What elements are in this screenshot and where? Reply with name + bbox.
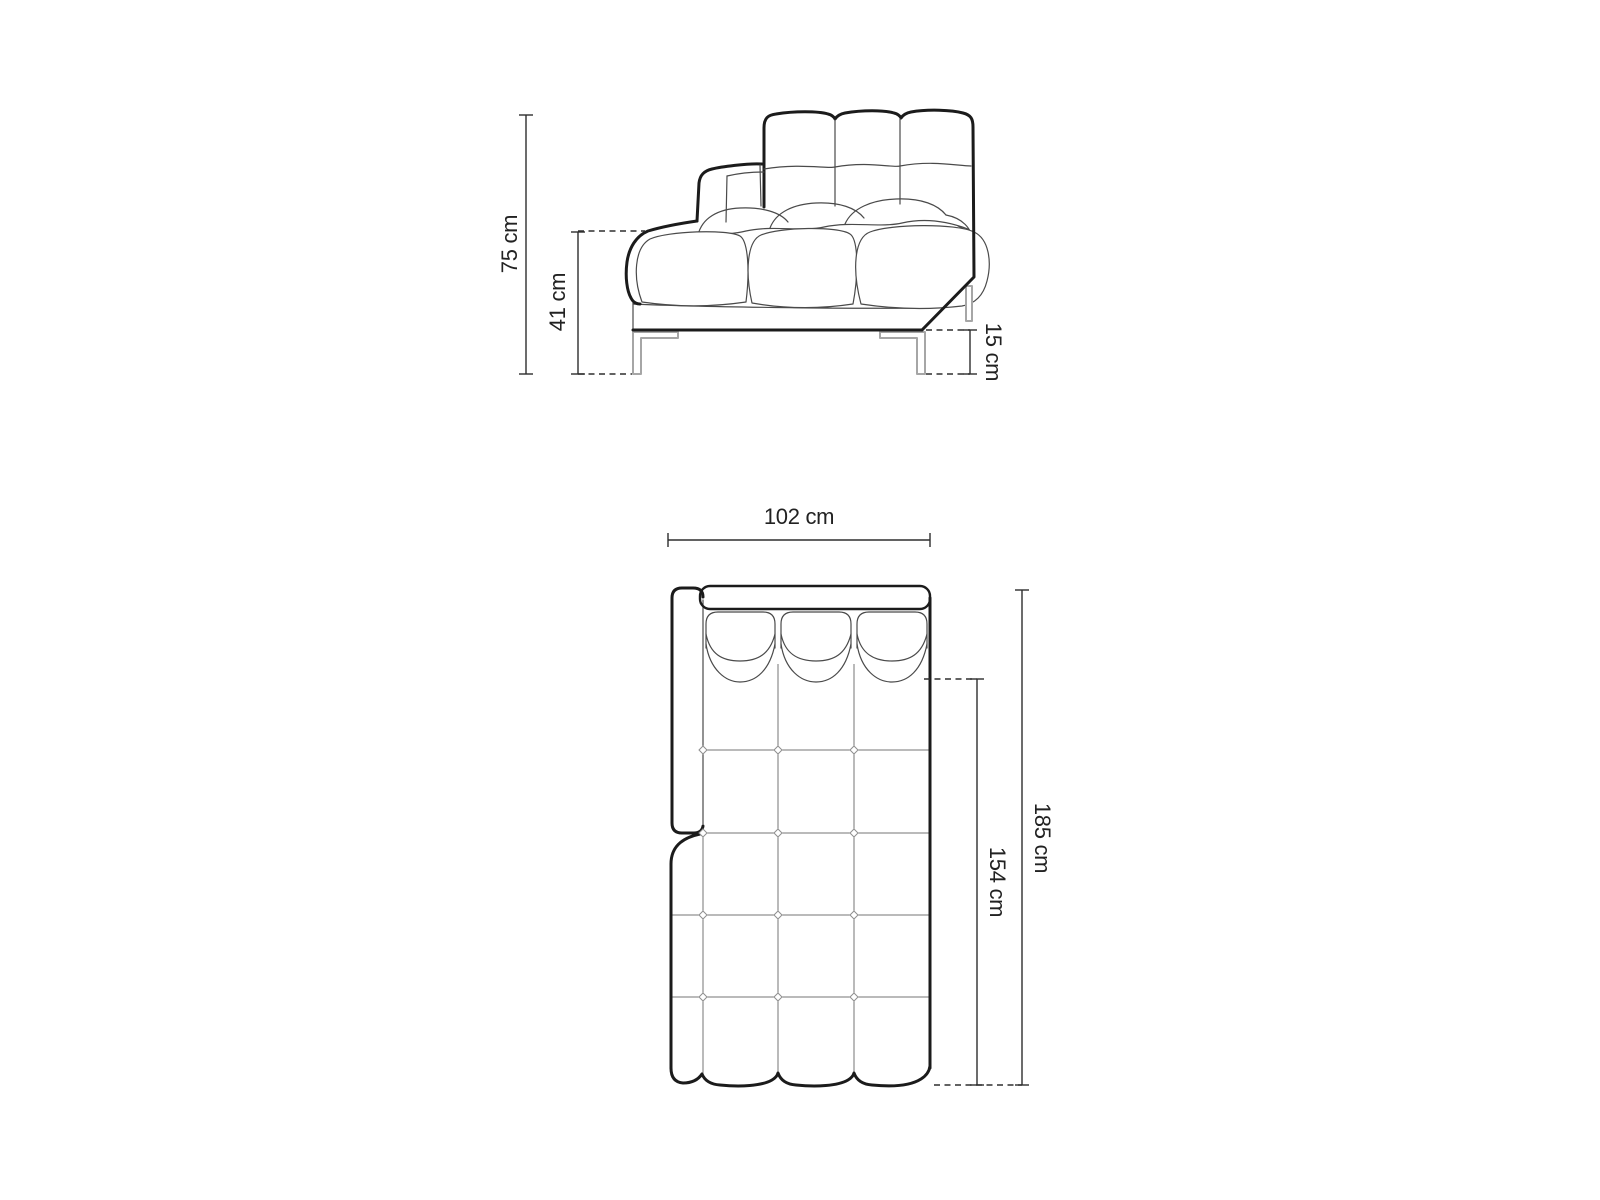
front-leg: [633, 332, 678, 374]
rear-leg: [880, 332, 925, 374]
dim-total-depth: [934, 590, 1029, 1085]
plan-armrest: [672, 588, 703, 833]
dim-leg-height: [926, 330, 977, 374]
top-plan-drawing: [668, 533, 1029, 1086]
technical-drawing-canvas: 75 cm 41 cm 15 cm 102 cm 154 cm 185 cm: [0, 0, 1600, 1200]
dim-width: [668, 533, 930, 547]
side-seat-cushions: [636, 226, 989, 309]
total-depth-label: 185 cm: [1029, 803, 1055, 873]
sofa-dimension-drawing: [0, 0, 1600, 1200]
far-rear-leg: [966, 286, 972, 321]
leg-height-label: 15 cm: [980, 323, 1006, 381]
plan-tufting-grid: [671, 664, 929, 1076]
seat-depth-label: 154 cm: [984, 847, 1010, 917]
side-elevation-drawing: [519, 110, 989, 374]
dim-seat-depth: [924, 679, 984, 1085]
seat-height-label: 41 cm: [545, 273, 571, 331]
plan-backrest-rail: [700, 586, 930, 609]
plan-back-cushions: [706, 612, 927, 682]
plan-body-outline: [671, 598, 930, 1086]
width-label: 102 cm: [764, 504, 834, 530]
side-armrest: [697, 164, 764, 222]
total-height-label: 75 cm: [497, 215, 523, 273]
